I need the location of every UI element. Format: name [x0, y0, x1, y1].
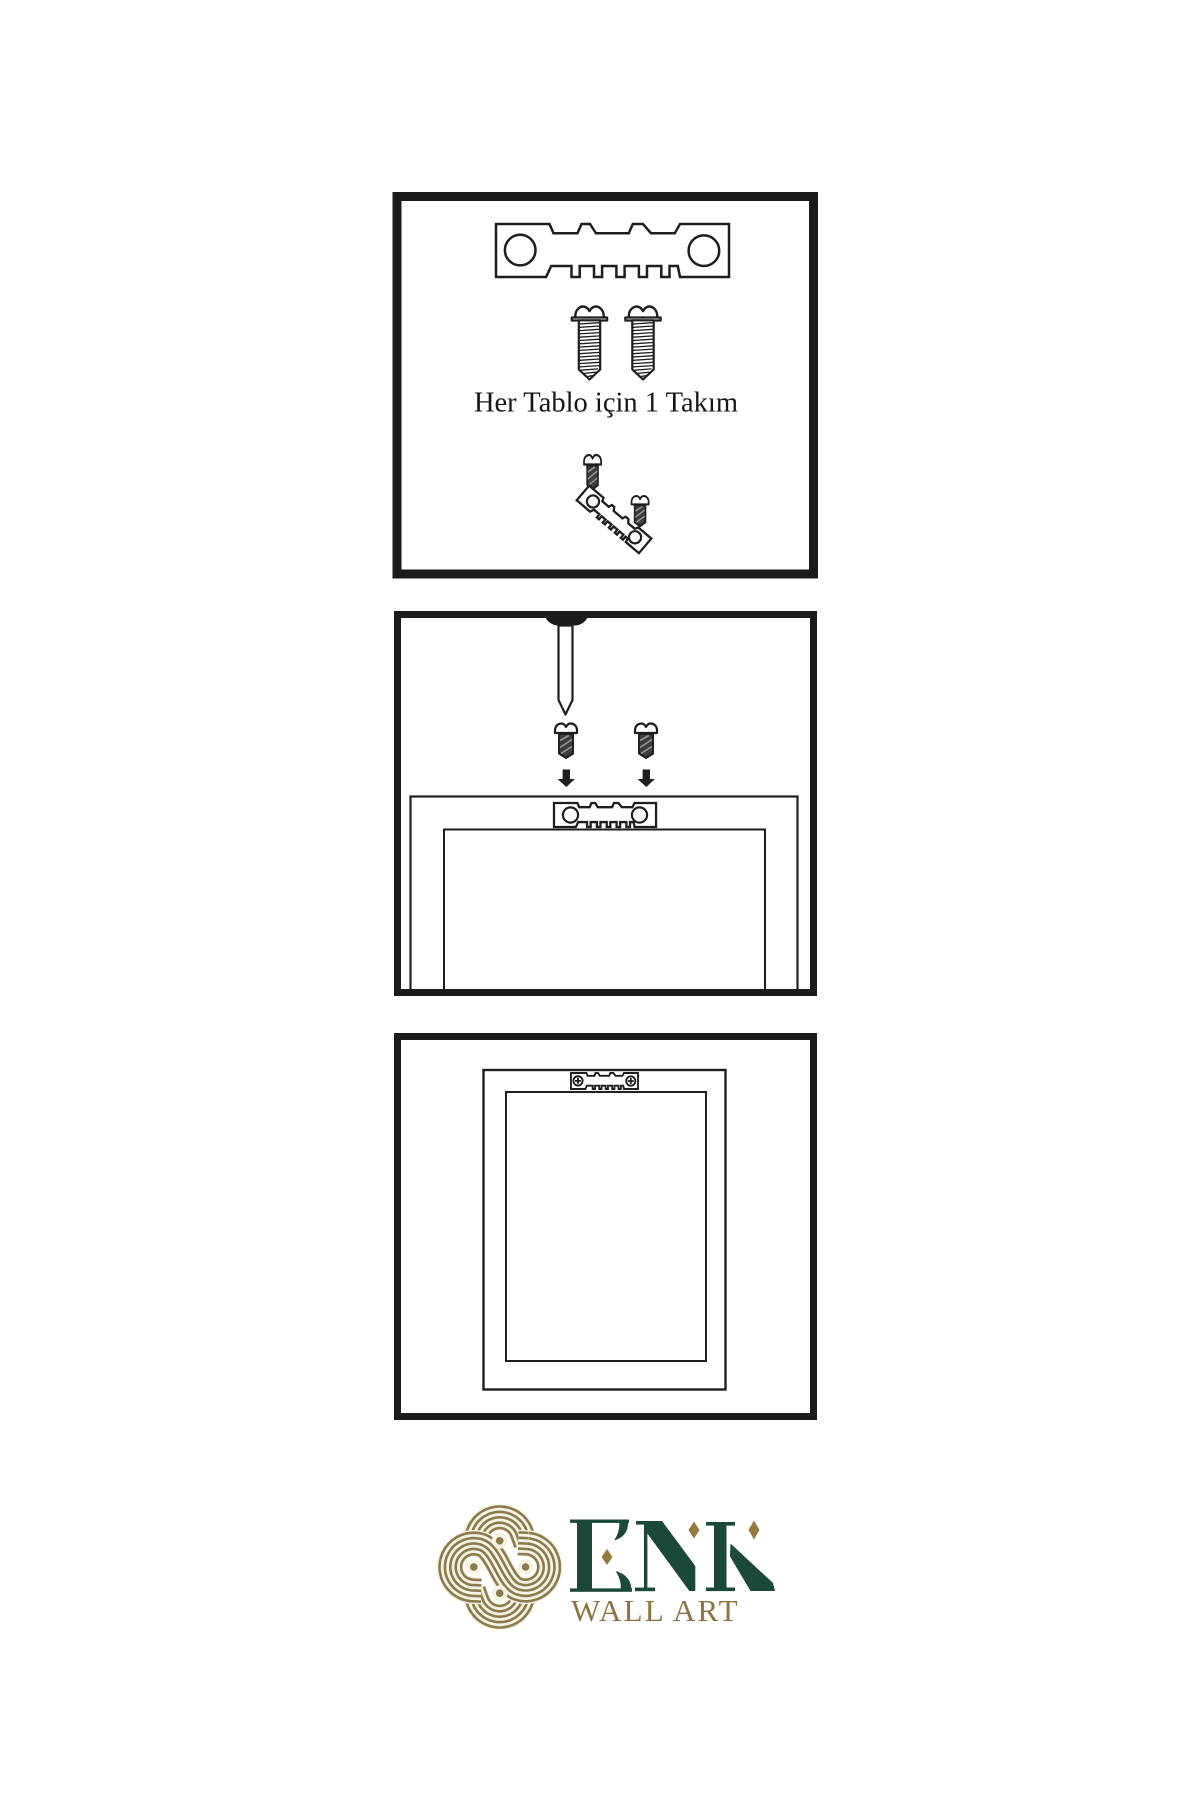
svg-text:Her Tablo için 1 Takım: Her Tablo için 1 Takım [474, 388, 738, 419]
svg-text:WALL ART: WALL ART [571, 1593, 740, 1628]
